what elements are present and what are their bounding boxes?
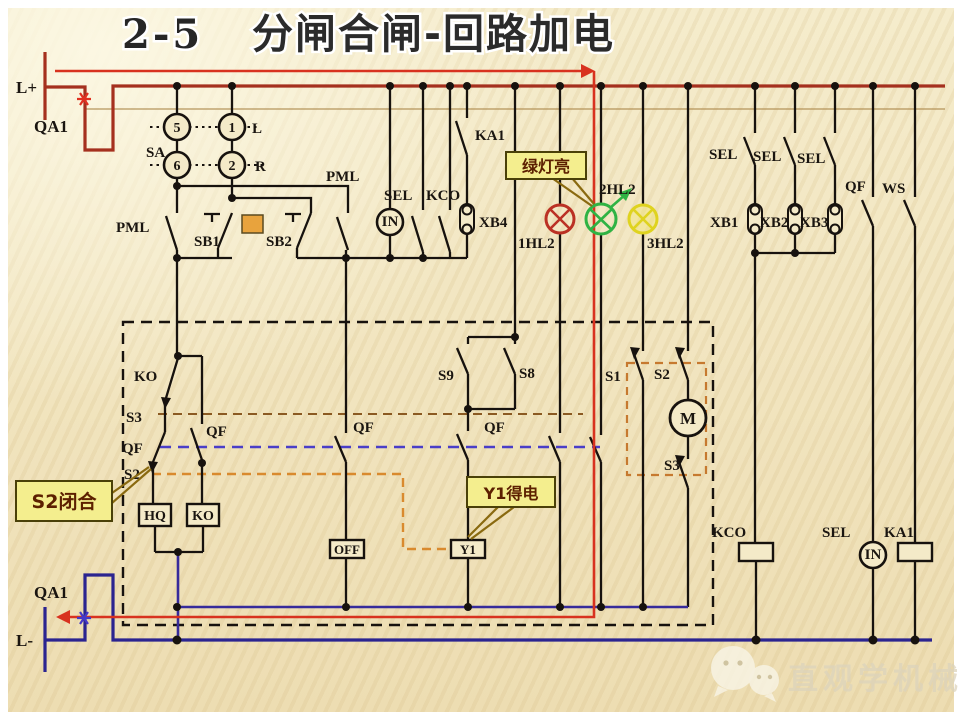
lamps: [546, 204, 657, 234]
xb4-fuse-top: [463, 206, 472, 215]
junction-dot: [174, 548, 182, 556]
xb2-label: XB2: [760, 215, 788, 231]
callout-y1-energized: Y1得电: [467, 477, 555, 539]
junction-dot: [174, 352, 182, 360]
junction-dot: [419, 82, 427, 90]
wire-sel-kco-contacts: [412, 86, 450, 258]
lamp-3hl2-label: 3HL2: [647, 236, 684, 252]
sa-l-label: L: [252, 121, 262, 137]
junction-dot: [684, 82, 692, 90]
qf-a-label: QF: [122, 441, 143, 457]
xb3-label: XB3: [800, 215, 828, 231]
junction-dot: [511, 82, 519, 90]
junction-dot: [556, 82, 564, 90]
junction-dot: [446, 82, 454, 90]
junction-dot: [464, 603, 472, 611]
sa-terminal-5-label: 5: [174, 121, 181, 136]
qf-sub-label: QF: [206, 424, 227, 440]
ko-coil-label: KO: [192, 509, 214, 524]
title-number: 2-5: [122, 11, 203, 58]
qa1-bottom-label: QA1: [34, 583, 68, 602]
motor-label: M: [680, 409, 696, 428]
ka1-coil-label: KA1: [884, 525, 914, 541]
junction-dot: [791, 249, 799, 257]
junction-dot: [831, 82, 839, 90]
wechat-eye: [768, 675, 772, 679]
wechat-big-bubble: [711, 646, 755, 690]
hq-coil-label: HQ: [144, 509, 166, 524]
xb1-label: XB1: [710, 215, 738, 231]
xb3-fuse-bottom: [831, 225, 840, 234]
wire-motor-column: [679, 86, 688, 607]
pml-left-label: PML: [116, 220, 149, 236]
junction-dot: [342, 254, 350, 262]
l-plus-label: L+: [16, 78, 37, 97]
xb3-fuse-top: [831, 206, 840, 215]
indicator-square: [242, 215, 263, 233]
coil-boxes: [139, 504, 932, 561]
wire-sa-columns: [177, 86, 232, 198]
junction-dot: [173, 82, 181, 90]
callout-s2-text: S2闭合: [32, 490, 98, 513]
l-minus-label: L-: [16, 631, 33, 650]
callout-green-text: 绿灯亮: [522, 157, 570, 176]
wechat-eye: [757, 675, 761, 679]
closed-marks: [77, 93, 91, 624]
junction-dot: [751, 249, 759, 257]
sa-r-label: R: [255, 159, 266, 175]
in-device-top-label: IN: [382, 214, 399, 230]
junction-dot: [463, 82, 471, 90]
xb1-fuse-bottom: [751, 225, 760, 234]
qf-right-label: QF: [484, 420, 505, 436]
junction-dot: [173, 636, 182, 645]
sel-bottom-label: SEL: [822, 525, 850, 541]
page-title: 分闸合闸-回路加电: [252, 10, 615, 58]
ka1-coil-box: [898, 543, 932, 561]
junction-dot: [556, 603, 564, 611]
highlight-return-arrowhead: [56, 610, 70, 624]
y1-coil-label: Y1: [460, 542, 476, 557]
wire-pml2-contact: [337, 217, 348, 258]
watermark: 直观学机械: [711, 646, 960, 702]
contact-barbs: [148, 347, 685, 473]
s9-label: S9: [438, 368, 454, 384]
lamp-1hl2-cross: [550, 209, 570, 229]
s1-label: S1: [605, 369, 621, 385]
mechanism-dashed-box: [123, 322, 713, 625]
junction-dot: [173, 182, 181, 190]
junction-dot: [228, 194, 236, 202]
qf-top-label: QF: [845, 179, 866, 195]
junction-dot: [597, 82, 605, 90]
sel2-label: SEL: [753, 149, 781, 165]
ws-label: WS: [882, 181, 905, 197]
sel1-label: SEL: [709, 147, 737, 163]
junction-dot: [639, 603, 647, 611]
pml-right-label: PML: [326, 169, 359, 185]
junction-dot: [386, 254, 394, 262]
kco-contact-label: KCO: [426, 188, 460, 204]
s2-b-label: S2: [654, 367, 670, 383]
junction-dot: [751, 82, 759, 90]
return-line-group: [177, 552, 688, 640]
kco-coil-label: KCO: [712, 525, 746, 541]
sa-terminal-1-label: 1: [229, 121, 236, 136]
wechat-eye: [723, 660, 728, 665]
sel-contact-label: SEL: [384, 188, 412, 204]
xb2-fuse-bottom: [791, 225, 800, 234]
s8-label: S8: [519, 366, 535, 382]
junction-dot: [464, 405, 472, 413]
junction-dot: [639, 82, 647, 90]
kco-coil-box: [739, 543, 773, 561]
junction-dot: [752, 636, 761, 645]
wire-sa-output-rows: [177, 186, 348, 213]
junction-dot: [597, 603, 605, 611]
callout-green-tail: [552, 178, 594, 206]
junction-dot: [198, 459, 206, 467]
wechat-icon: [711, 646, 779, 702]
callout-y1-tail: [468, 507, 514, 539]
qf-mid-label: QF: [353, 420, 374, 436]
wechat-small-bubble: [749, 665, 779, 695]
in-device-bottom-label: IN: [865, 547, 882, 563]
junction-dot: [228, 82, 236, 90]
xb4-fuse-bottom: [463, 225, 472, 234]
xb4-label: XB4: [479, 215, 508, 231]
wire-pml-contact: [166, 186, 177, 258]
ka1-contact-label: KA1: [475, 128, 505, 144]
junction-dot: [791, 82, 799, 90]
sa-terminal-2-label: 2: [229, 159, 236, 174]
sa-terminal-6-label: 6: [174, 159, 181, 174]
junction-dot: [173, 603, 181, 611]
slide: 2-5 分闸合闸-回路加电: [0, 0, 960, 720]
junction-dot: [386, 82, 394, 90]
junction-dot: [419, 254, 427, 262]
sb2-label: SB2: [266, 234, 292, 250]
sa-label: SA: [146, 145, 165, 161]
wechat-eye: [737, 660, 742, 665]
sb1-label: SB1: [194, 234, 220, 250]
sel3-label: SEL: [797, 151, 825, 167]
xb2-fuse-top: [791, 206, 800, 215]
wire-3hl2-s1-column: [634, 86, 643, 607]
lamp-2hl2-label: 2HL2: [599, 182, 636, 198]
xb1-fuse-top: [751, 206, 760, 215]
lamp-1hl2-label: 1HL2: [518, 236, 555, 252]
junction-dot: [342, 603, 350, 611]
s3-label: S3: [126, 410, 142, 426]
junction-dot: [869, 82, 877, 90]
qa1-top-label: QA1: [34, 117, 68, 136]
ko-contact-label: KO: [134, 369, 157, 385]
s3-b-label: S3: [664, 458, 680, 474]
wire-2hl2-column: [590, 86, 601, 607]
watermark-text: 直观学机械: [788, 662, 960, 697]
junction-dot: [911, 82, 919, 90]
callout-y1-text: Y1得电: [483, 484, 539, 503]
junction-dot: [511, 333, 519, 341]
circuit-diagram: 2-5 分闸合闸-回路加电: [0, 0, 960, 720]
callout-green-lamp: 绿灯亮: [506, 152, 594, 206]
junction-dot: [911, 636, 920, 645]
off-coil-label: OFF: [334, 542, 360, 557]
junction-dot: [173, 254, 181, 262]
junction-dot: [869, 636, 878, 645]
